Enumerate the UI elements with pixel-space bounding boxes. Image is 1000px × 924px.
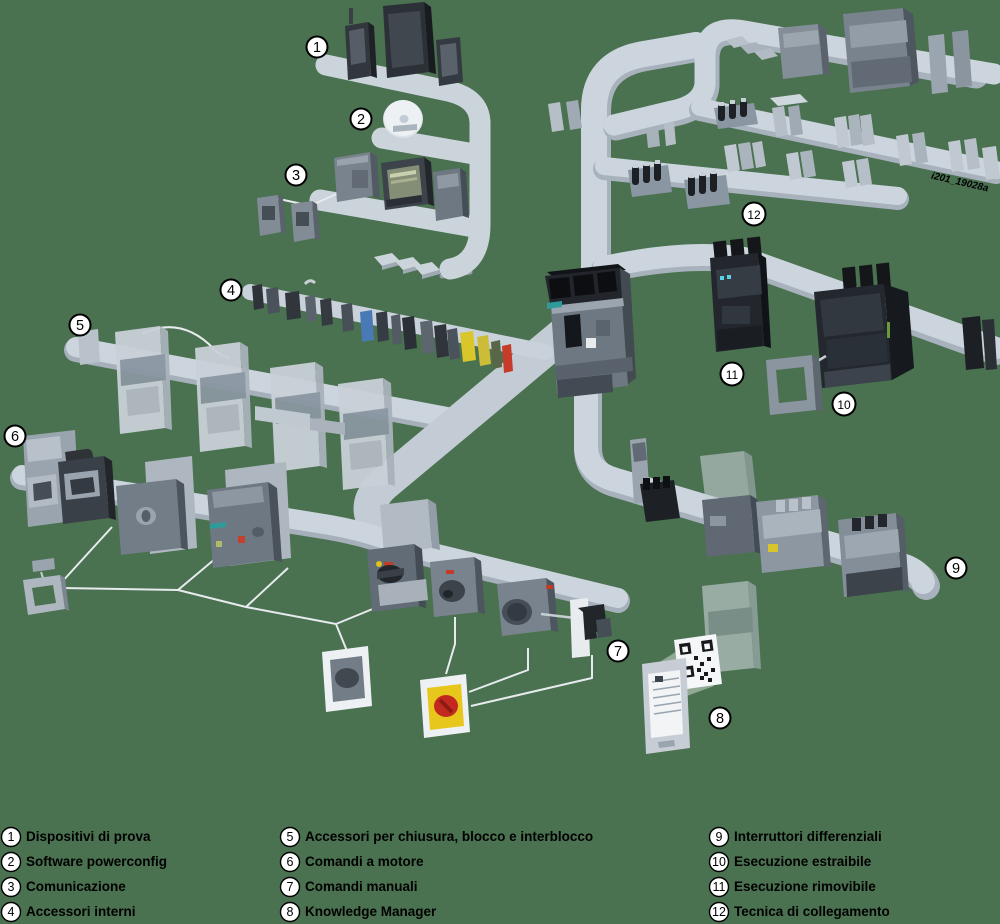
- svg-text:5: 5: [287, 830, 294, 844]
- svg-text:Accessori per chiusura, blocco: Accessori per chiusura, blocco e interbl…: [305, 829, 593, 844]
- svg-text:Dispositivi di prova: Dispositivi di prova: [26, 829, 151, 844]
- svg-text:7: 7: [614, 644, 622, 660]
- svg-text:6: 6: [287, 855, 294, 869]
- svg-text:11: 11: [713, 880, 726, 894]
- svg-text:Comandi manuali: Comandi manuali: [305, 879, 418, 894]
- svg-text:Comandi a motore: Comandi a motore: [305, 854, 424, 869]
- svg-text:12: 12: [712, 905, 726, 919]
- svg-text:8: 8: [287, 905, 294, 919]
- svg-text:5: 5: [76, 318, 84, 334]
- svg-text:10: 10: [837, 398, 851, 412]
- svg-text:10: 10: [712, 855, 726, 869]
- svg-text:1: 1: [8, 830, 15, 844]
- svg-text:9: 9: [716, 830, 723, 844]
- svg-text:4: 4: [227, 283, 235, 299]
- svg-text:Software powerconfig: Software powerconfig: [26, 854, 167, 869]
- svg-text:12: 12: [747, 208, 761, 222]
- svg-text:Esecuzione rimovibile: Esecuzione rimovibile: [734, 879, 876, 894]
- svg-text:1: 1: [313, 40, 321, 56]
- svg-text:9: 9: [952, 561, 960, 577]
- svg-text:7: 7: [287, 880, 294, 894]
- svg-text:2: 2: [8, 855, 15, 869]
- svg-text:Accessori interni: Accessori interni: [26, 904, 136, 919]
- svg-text:8: 8: [716, 711, 724, 727]
- svg-text:Interruttori differenziali: Interruttori differenziali: [734, 829, 882, 844]
- svg-text:3: 3: [8, 880, 15, 894]
- svg-text:Comunicazione: Comunicazione: [26, 879, 126, 894]
- svg-text:Esecuzione estraibile: Esecuzione estraibile: [734, 854, 872, 869]
- svg-text:11: 11: [726, 368, 739, 382]
- svg-text:6: 6: [11, 429, 19, 445]
- svg-text:Tecnica di collegamento: Tecnica di collegamento: [734, 904, 890, 919]
- svg-text:4: 4: [8, 905, 15, 919]
- svg-text:Knowledge Manager: Knowledge Manager: [305, 904, 437, 919]
- svg-text:3: 3: [292, 168, 300, 184]
- svg-text:2: 2: [357, 112, 365, 128]
